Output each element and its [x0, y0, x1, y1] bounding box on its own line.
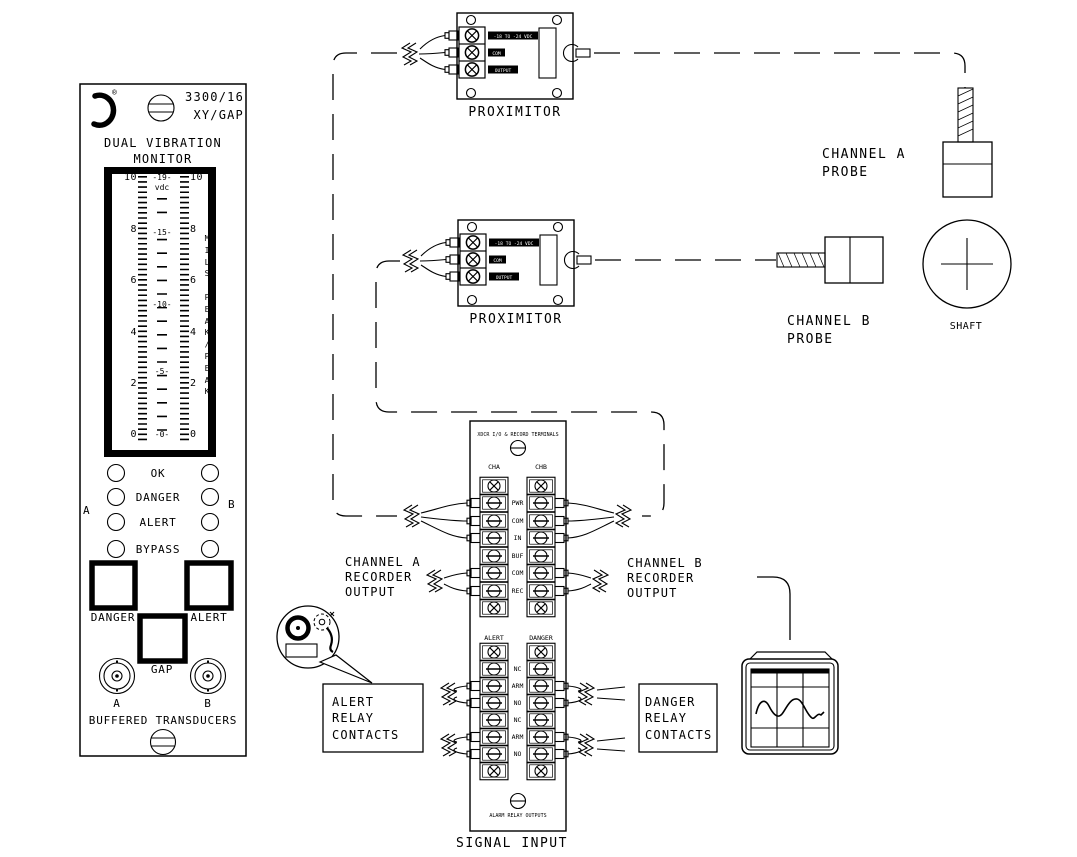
chb-header: CHB	[535, 463, 547, 471]
recorder-icon	[742, 577, 838, 754]
row-label-arm2: ARM	[512, 733, 524, 741]
danger-button-label: DANGER	[91, 611, 136, 624]
cha-recorder-label2: RECORDER	[345, 570, 412, 584]
buffered-transducers-label: BUFFERED TRANSDUCERS	[89, 714, 237, 727]
led-label-ok: OK	[151, 467, 166, 480]
panel-title-line1: DUAL VIBRATION	[104, 136, 222, 150]
scale-center-0: -0-	[155, 430, 169, 439]
channel-b-probe-label2: PROBE	[787, 332, 834, 347]
bnc-b-label: B	[204, 697, 211, 710]
channel-a-probe-label2: PROBE	[822, 165, 869, 180]
alert-button-label: ALERT	[190, 611, 227, 624]
channel-a-letter: A	[83, 504, 90, 517]
scale-left-6: 6	[130, 275, 137, 286]
xdcr-io-note: XDCR I/O & RECORD TERMINALS	[477, 432, 558, 438]
row-label-nc1: NC	[514, 665, 522, 673]
led-label-alert: ALERT	[139, 516, 176, 529]
proximitor-a	[402, 13, 590, 120]
cable-break-icon	[427, 570, 442, 592]
scale-right-2: 2	[190, 378, 197, 389]
scale-left-10: 10	[124, 172, 137, 183]
cha-recorder-label3: OUTPUT	[345, 585, 396, 599]
scale-center-vdc: vdc	[155, 183, 170, 192]
row-label-in: IN	[514, 534, 522, 542]
danger-box-label1: DANGER	[645, 695, 696, 709]
bnc-a-label: A	[113, 697, 120, 710]
cha-header: CHA	[488, 463, 500, 471]
alert-box-label1: ALERT	[332, 695, 374, 709]
row-label-no1: NO	[514, 699, 522, 707]
row-label-com: COM	[512, 517, 524, 525]
chb-recorder-label2: RECORDER	[627, 571, 694, 585]
danger-col-header: DANGER	[529, 634, 553, 642]
alert-box-label2: RELAY	[332, 711, 374, 725]
signal-input-block: XDCR I/O & RECORD TERMINALS CHA CHB PWR …	[470, 421, 566, 831]
cable-break-icon	[593, 570, 608, 592]
scale-center-5: -5-	[155, 367, 169, 376]
channel-b-probe	[777, 237, 883, 283]
scale-left-2: 2	[130, 378, 137, 389]
cable-break-icon	[441, 683, 456, 705]
row-label-no2: NO	[514, 750, 522, 758]
shaft-label: SHAFT	[950, 321, 983, 332]
led-label-bypass: BYPASS	[136, 543, 181, 556]
scale-left-8: 8	[130, 224, 137, 235]
row-label-nc2: NC	[514, 716, 522, 724]
model-number: 3300/16	[185, 90, 244, 104]
channel-a-probe	[943, 88, 992, 197]
chb-recorder-label3: OUTPUT	[627, 586, 678, 600]
scale-right-6: 6	[190, 275, 197, 286]
signal-input-caption: SIGNAL INPUT	[456, 836, 568, 851]
cha-recorder-label1: CHANNEL A	[345, 555, 421, 569]
cable-break-icon	[441, 734, 456, 756]
wire-proxA-to-cha	[333, 53, 397, 516]
cable-break-icon	[404, 505, 419, 527]
meter-window	[112, 174, 208, 450]
danger-box-label2: RELAY	[645, 711, 687, 725]
alert-col-header: ALERT	[484, 634, 504, 642]
scale-left-4: 4	[130, 327, 137, 338]
alert-box-label3: CONTACTS	[332, 728, 399, 742]
shaft-symbol	[923, 220, 1011, 308]
chb-recorder-label1: CHANNEL B	[627, 556, 703, 570]
recorder-wire	[757, 577, 790, 640]
registered-mark: ®	[112, 88, 117, 97]
scale-center-10: -10-	[152, 300, 171, 309]
cable-break-icon	[579, 683, 594, 705]
model-variant: XY/GAP	[193, 108, 244, 122]
callout-tail	[320, 655, 372, 683]
channel-a-probe-label1: CHANNEL A	[822, 147, 906, 162]
proximitor-b	[403, 220, 591, 327]
alarm-relay-note: ALARM RELAY OUTPUTS	[489, 813, 546, 819]
cable-break-icon	[616, 505, 631, 527]
row-label-arm1: ARM	[512, 682, 524, 690]
row-label-pwr: PWR	[512, 499, 524, 507]
scale-center-15: -15-	[152, 228, 171, 237]
row-label-buf: BUF	[512, 552, 524, 560]
scale-center-19: -19-	[152, 173, 171, 182]
row-label-rec: REC	[512, 587, 524, 595]
meter-side-text-left: M I L S P E A K / P E A K	[102, 233, 114, 398]
monitor-panel: ® 3300/16 XY/GAP DUAL VIBRATION MONITOR …	[80, 84, 246, 756]
relay-callout	[277, 606, 372, 683]
field-wiring	[333, 53, 965, 516]
scale-right-0: 0	[190, 429, 197, 440]
cable-break-icon	[579, 734, 594, 756]
panel-title-line2: MONITOR	[134, 152, 193, 166]
scale-right-8: 8	[190, 224, 197, 235]
wire-proxA-to-probeA	[594, 53, 965, 88]
row-label-com2: COM	[512, 569, 524, 577]
diagram-linework: -18 TO -24 VDC COM OUTPUT PROXIMITOR ® 3…	[0, 0, 1077, 857]
scale-left-0: 0	[130, 429, 137, 440]
signal-input-outline	[470, 421, 566, 831]
channel-b-letter: B	[228, 498, 235, 511]
scale-right-4: 4	[190, 327, 197, 338]
led-label-danger: DANGER	[136, 491, 181, 504]
meter-side-text-right: M I L S P E A K / P E A K	[201, 233, 213, 398]
wiring-diagram: -18 TO -24 VDC COM OUTPUT PROXIMITOR ® 3…	[0, 0, 1077, 857]
scale-right-10: 10	[190, 172, 203, 183]
danger-box-label3: CONTACTS	[645, 728, 712, 742]
channel-b-probe-label1: CHANNEL B	[787, 314, 871, 329]
bargraph-meter: 10 8 6 4 2 0 -19- vdc -15- -10- -5- -0- …	[104, 167, 216, 457]
gap-button-label: GAP	[151, 663, 173, 676]
